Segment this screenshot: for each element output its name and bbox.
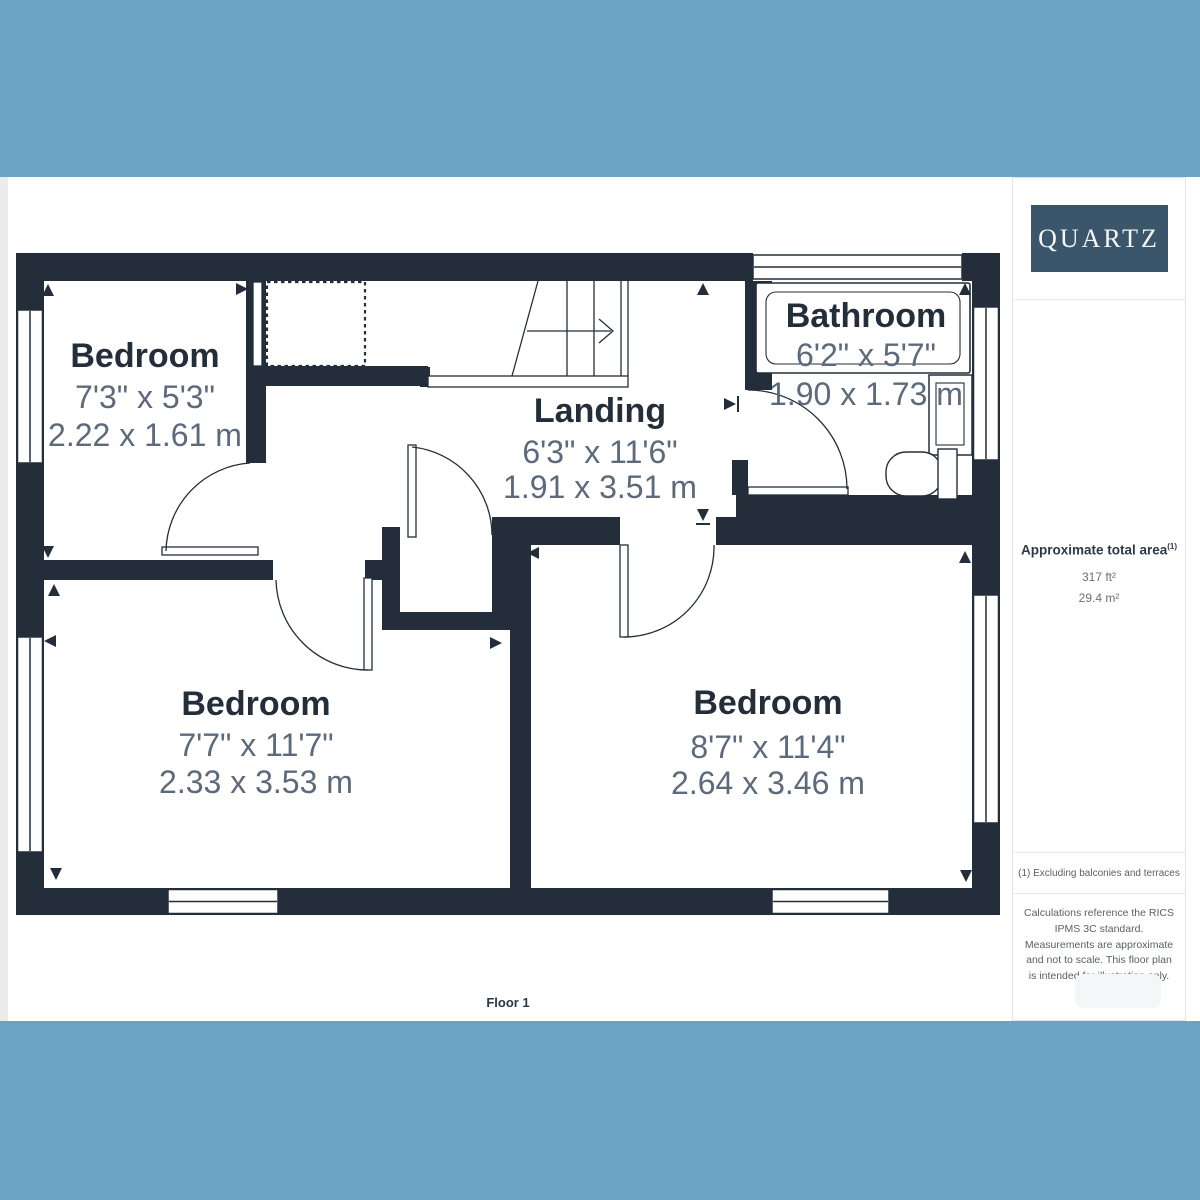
disclaimer-section: Calculations reference the RICS IPMS 3C … (1013, 893, 1185, 1020)
room-name-landing: Landing (534, 392, 666, 430)
floor-label: Floor 1 (486, 995, 529, 1010)
toilet-bowl (886, 452, 942, 496)
total-area-imperial: 317 ft² (1082, 567, 1116, 589)
total-area-title-text: Approximate total area (1021, 543, 1167, 558)
room-name-bedroom-bottom-right: Bedroom (693, 684, 842, 722)
room-dims-metric: 2.22 x 1.61 m (48, 417, 242, 453)
logo-section: QUARTZ (1013, 178, 1185, 299)
room-dims-metric: 1.90 x 1.73 m (769, 376, 963, 412)
footnote-section: (1) Excluding balconies and terraces (1013, 852, 1185, 893)
wardrobe-dashed-outline (267, 282, 365, 366)
floorplan-page: Bedroom 7'3" x 5'3" 2.22 x 1.61 m Landin… (0, 0, 1200, 1200)
quartz-logo-text: QUARTZ (1038, 224, 1160, 254)
info-sidebar: QUARTZ Approximate total area(1) 317 ft²… (1012, 177, 1186, 1021)
disclaimer-text: Calculations reference the RICS IPMS 3C … (1023, 906, 1175, 985)
door-bedroom-bottom-right (620, 545, 714, 637)
room-name-bedroom-bottom-left: Bedroom (181, 685, 330, 723)
wardrobe (253, 282, 365, 366)
room-dims-metric: 2.33 x 3.53 m (159, 764, 353, 800)
staircase (428, 281, 628, 387)
door-bedroom-top-left (162, 463, 258, 555)
room-dims-imperial: 6'3" x 11'6" (522, 434, 677, 470)
door-bedroom-bottom-left (276, 578, 372, 670)
room-name-bathroom: Bathroom (786, 297, 947, 335)
room-dims-metric: 2.64 x 3.46 m (671, 765, 865, 801)
room-dims-metric: 1.91 x 3.51 m (503, 469, 697, 505)
quartz-logo: QUARTZ (1031, 205, 1168, 272)
room-dims-imperial: 6'2" x 5'7" (796, 337, 936, 373)
total-area-title: Approximate total area(1) (1021, 542, 1177, 558)
room-dims-imperial: 7'3" x 5'3" (75, 379, 215, 415)
faint-watermark (1075, 974, 1161, 1008)
room-dims-imperial: 7'7" x 11'7" (178, 727, 333, 763)
total-area-section: Approximate total area(1) 317 ft² 29.4 m… (1013, 299, 1185, 852)
footnote-text: (1) Excluding balconies and terraces (1018, 868, 1180, 879)
total-area-metric: 29.4 m² (1079, 588, 1120, 610)
footnote-marker: (1) (1167, 542, 1177, 551)
toilet-cistern (938, 449, 957, 499)
wardrobe-door-leaf (253, 282, 262, 366)
door-cupboard (408, 445, 492, 537)
room-name-bedroom-top-left: Bedroom (70, 337, 219, 375)
room-dims-imperial: 8'7" x 11'4" (690, 729, 845, 765)
